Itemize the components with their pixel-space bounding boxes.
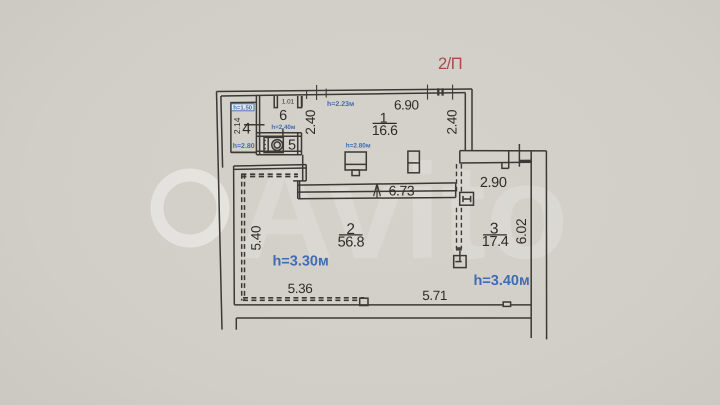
svg-text:5.40: 5.40 [248,226,263,251]
svg-text:h=2.23м: h=2.23м [327,100,354,108]
svg-text:1.01: 1.01 [282,98,295,105]
svg-text:6: 6 [279,108,287,124]
svg-text:5.36: 5.36 [288,281,313,296]
svg-text:4: 4 [242,120,251,137]
svg-text:h=2,40м: h=2,40м [271,124,295,131]
svg-text:5.71: 5.71 [422,288,447,303]
svg-text:56.8: 56.8 [338,235,365,251]
svg-text:6.90: 6.90 [394,98,419,113]
svg-text:2.90: 2.90 [480,175,507,191]
svg-text:h=1.50: h=1.50 [233,105,253,112]
svg-text:h=3.30м: h=3.30м [272,253,328,269]
svg-text:h=3.40м: h=3.40м [473,273,529,289]
svg-text:2/П: 2/П [438,55,462,73]
svg-text:6.73: 6.73 [389,183,415,199]
svg-text:h=2.80: h=2.80 [233,142,255,150]
svg-text:5: 5 [288,138,296,154]
svg-text:2.40: 2.40 [303,110,318,135]
svg-text:2.40: 2.40 [445,110,460,135]
svg-text:6.02: 6.02 [513,218,529,244]
svg-text:17.4: 17.4 [482,234,509,250]
svg-text:h=2.80м: h=2.80м [346,142,371,149]
svg-text:2.14: 2.14 [232,117,242,134]
svg-text:16.6: 16.6 [372,122,398,138]
